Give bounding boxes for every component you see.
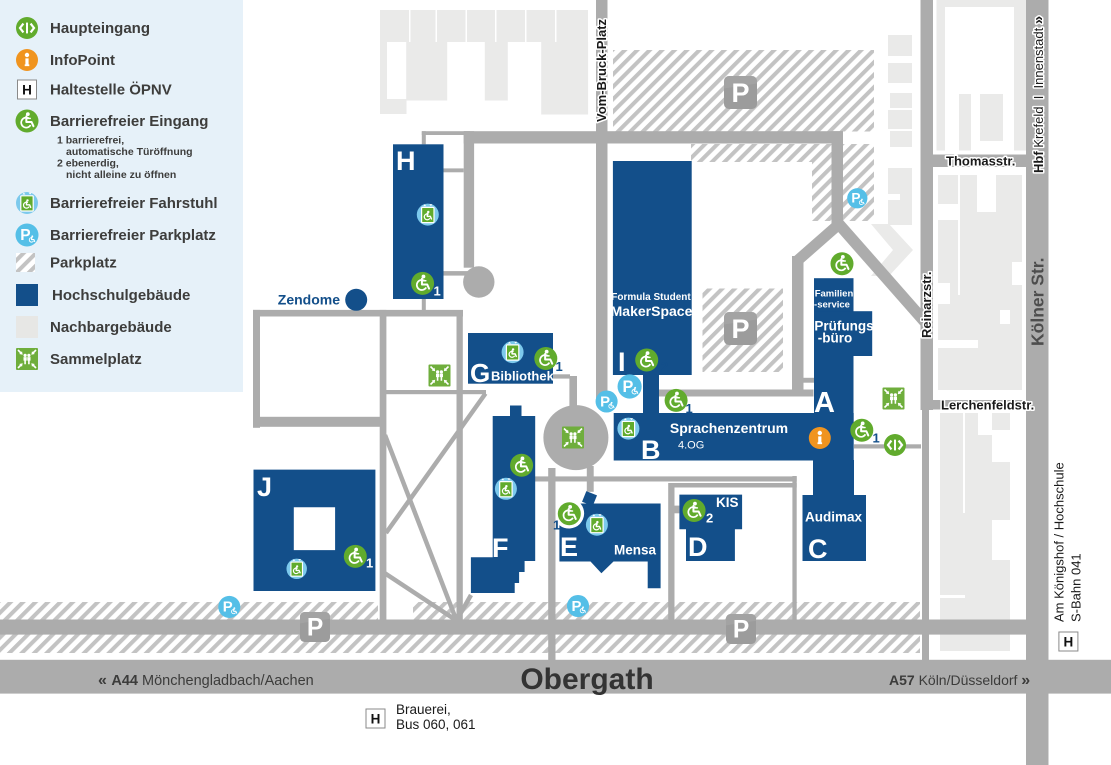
svg-text:Nachbargebäude: Nachbargebäude [50,319,172,336]
svg-text:Bibliothek: Bibliothek [491,369,555,384]
svg-text:Vom-Bruck-Platz: Vom-Bruck-Platz [594,18,609,122]
svg-text:Parkplatz: Parkplatz [50,255,117,272]
svg-text:1: 1 [553,518,560,533]
svg-text:Zendome: Zendome [278,292,340,308]
svg-text:« A44 Mönchengladbach/Aachen: « A44 Mönchengladbach/Aachen [98,672,314,689]
svg-text:Haupteingang: Haupteingang [50,20,150,37]
svg-text:1: 1 [434,284,441,299]
svg-text:C: C [808,534,828,564]
svg-text:A57 Köln/Düsseldorf »: A57 Köln/Düsseldorf » [889,672,1030,689]
svg-text:Sprachenzentrum: Sprachenzentrum [670,420,788,436]
svg-text:B: B [641,435,661,465]
svg-text:InfoPoint: InfoPoint [50,52,115,69]
svg-text:Thomasstr.: Thomasstr. [946,154,1015,169]
svg-text:2: 2 [661,359,668,374]
svg-text:J: J [257,472,272,502]
svg-text:G: G [470,358,490,388]
svg-text:automatische Türöffnung: automatische Türöffnung [66,146,193,158]
svg-text:D: D [688,532,708,562]
svg-text:2 ebenerdig,: 2 ebenerdig, [57,158,119,170]
svg-text:nicht alleine zu öffnen: nicht alleine zu öffnen [66,169,176,181]
svg-text:Bus 060, 061: Bus 060, 061 [396,717,476,732]
svg-text:Mensa: Mensa [614,543,657,558]
svg-text:Reinarzstr.: Reinarzstr. [919,272,934,338]
svg-text:4.OG: 4.OG [678,440,704,452]
svg-text:Haltestelle ÖPNV: Haltestelle ÖPNV [50,82,172,99]
svg-text:Kölner Str.: Kölner Str. [1028,258,1048,347]
svg-text:S-Bahn 041: S-Bahn 041 [1069,553,1084,622]
svg-text:KIS: KIS [716,495,739,510]
svg-text:Am Königshof / Hochschule: Am Königshof / Hochschule [1052,462,1067,622]
svg-text:Hochschulgebäude: Hochschulgebäude [52,287,190,304]
svg-text:H: H [396,146,416,176]
svg-text:Formula Student: Formula Student [611,292,691,303]
svg-text:Sammelplatz: Sammelplatz [50,351,142,368]
svg-text:Barrierefreier Eingang: Barrierefreier Eingang [50,113,208,130]
svg-text:F: F [492,533,509,563]
svg-text:Audimax: Audimax [805,510,863,525]
svg-text:Barrierefreier Fahrstuhl: Barrierefreier Fahrstuhl [50,195,218,212]
svg-text:Obergath: Obergath [520,663,653,696]
svg-text:2: 2 [706,511,713,526]
svg-text:I: I [618,347,626,377]
svg-text:MakerSpace: MakerSpace [611,303,693,319]
svg-text:1: 1 [556,359,563,374]
svg-text:Lerchenfeldstr.: Lerchenfeldstr. [941,398,1034,413]
svg-text:Hbf Krefeld I Innenstadt »: Hbf Krefeld I Innenstadt » [1030,16,1047,173]
svg-text:1: 1 [686,401,693,416]
svg-text:Familien: Familien [815,289,854,300]
svg-text:-service: -service [814,300,850,311]
svg-text:Brauerei,: Brauerei, [396,702,451,717]
svg-text:A: A [814,387,835,419]
svg-text:Barrierefreier Parkplatz: Barrierefreier Parkplatz [50,227,216,244]
svg-text:1: 1 [873,431,880,446]
svg-text:1: 1 [366,556,373,571]
svg-text:E: E [560,532,578,562]
svg-text:1 barrierefrei,: 1 barrierefrei, [57,135,124,147]
svg-text:-büro: -büro [818,331,853,346]
